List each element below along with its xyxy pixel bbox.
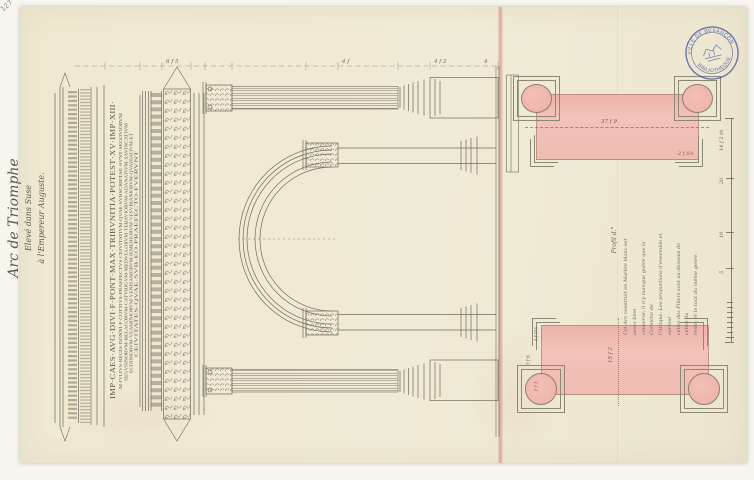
- elevation-linework: 6 f 5 4 f 4 f 2 4: [55, 59, 519, 441]
- attic-inscription: IMP·CAES·AVG·DIVI·F·PONT·MAX·TRIBVNITIA·…: [109, 95, 140, 407]
- dimension-label: 4: [483, 59, 488, 65]
- plan-centerline: [618, 318, 619, 406]
- cornice-bands: [55, 73, 104, 441]
- plan-notch: [530, 140, 553, 167]
- note-line: Cet Arc construit en Marbre blanc est as…: [622, 229, 640, 335]
- scale-tick: [727, 302, 733, 303]
- inscription-line: CEIVITATES·QVAE·SVB·EO·PRAEFECTO·FVERVNT: [134, 150, 139, 357]
- scale-caption: 14 f 2 th: [719, 119, 725, 151]
- scale-tick: [726, 337, 734, 338]
- plan-dim-label: 15 f 2: [608, 341, 614, 369]
- corinthian-capital: [206, 368, 232, 394]
- scale-tick: [727, 307, 733, 308]
- plan-caption-label: Profil d.°: [611, 220, 621, 260]
- pedestal-corner: [513, 76, 560, 121]
- dimension-label: 6 f 5: [166, 59, 179, 65]
- column-plinth-circle: [688, 373, 720, 405]
- plan-dim-label: 2 f 6½: [678, 151, 694, 157]
- stamp-text-bottom: BIBLIOTHÈQUE: [695, 54, 735, 78]
- upper-outer-column: [203, 78, 498, 119]
- stamp-emblem: [702, 44, 724, 62]
- pilaster-capital: [306, 311, 338, 335]
- upper-arch-pilaster: [303, 137, 496, 175]
- scale-tick: [727, 332, 733, 333]
- column-base: [400, 364, 424, 400]
- scale-line: [731, 118, 732, 342]
- scale-tick: [725, 342, 734, 343]
- note-handwritten: Cet Arc construit en Marbre blanc est as…: [622, 229, 668, 335]
- scale-tick: [727, 312, 733, 313]
- foliage-frieze: [164, 89, 191, 419]
- scale-tick: [726, 232, 734, 233]
- inscription-line: IMP·CAES·AVG·DIVI·F·PONT·MAX·TRIBVNITIA·…: [109, 101, 117, 399]
- scale-tick: [727, 322, 733, 323]
- scale-tick: [725, 118, 734, 119]
- lower-outer-column: [203, 360, 498, 401]
- arch-ring: [260, 167, 332, 311]
- pedestal-corner: [517, 365, 565, 413]
- note-line: l'Attique. Les proportions d'ensemble et…: [657, 229, 675, 335]
- dimension-label: 4 f: [341, 59, 350, 65]
- lower-arch-pilaster: [303, 304, 496, 342]
- column-plinth-circle: [525, 373, 557, 405]
- column-base: [400, 80, 424, 116]
- pilaster-capital: [306, 143, 338, 167]
- scale-tick: [726, 268, 734, 269]
- entablature-frieze: [143, 67, 205, 441]
- scale-tick: [727, 317, 733, 318]
- note-line: reste; et le tout du même genre.: [692, 229, 701, 335]
- plan-upper: 37 f 9 2 f 6½: [513, 75, 720, 171]
- scale-tick-label: 20: [719, 172, 725, 184]
- note-line: conservé; il n'y manque guère que la Cor…: [640, 229, 658, 335]
- scale-tick: [727, 327, 733, 328]
- plan-dim-label: 2 f 1: [535, 372, 540, 392]
- plan-dim-label: 37 f 9: [601, 119, 617, 125]
- page-number-pencil: 127: [0, 0, 14, 13]
- scanned-sheet: 127 Arc de Triomphe Elevé dans Suse à l'…: [0, 0, 754, 480]
- dimension-label: 4 f 2: [433, 59, 447, 65]
- plan-dim-label: 3 f 6: [527, 342, 532, 366]
- column-plinth-circle: [682, 84, 713, 113]
- pedestal-corner: [680, 365, 728, 413]
- plan-centerline: [525, 127, 709, 128]
- scale-tick: [726, 178, 734, 179]
- elevation-drawing: 6 f 5 4 f 4 f 2 4: [20, 7, 520, 463]
- scale-tick-label: 10: [719, 226, 725, 238]
- scale-tick-label: 5: [719, 262, 725, 274]
- plan-dim-label: 4 f 5½: [535, 318, 540, 342]
- column-plinth-circle: [521, 84, 552, 113]
- inscription-line: M·IVLIVS·REGIS·DONNI·F·COTTIVS·PRAEFECTV…: [118, 113, 123, 389]
- note-line: celles des Piliers sont au-dessous de ce…: [675, 229, 693, 335]
- arch-opening: [238, 146, 335, 332]
- corinthian-capital: [206, 85, 232, 111]
